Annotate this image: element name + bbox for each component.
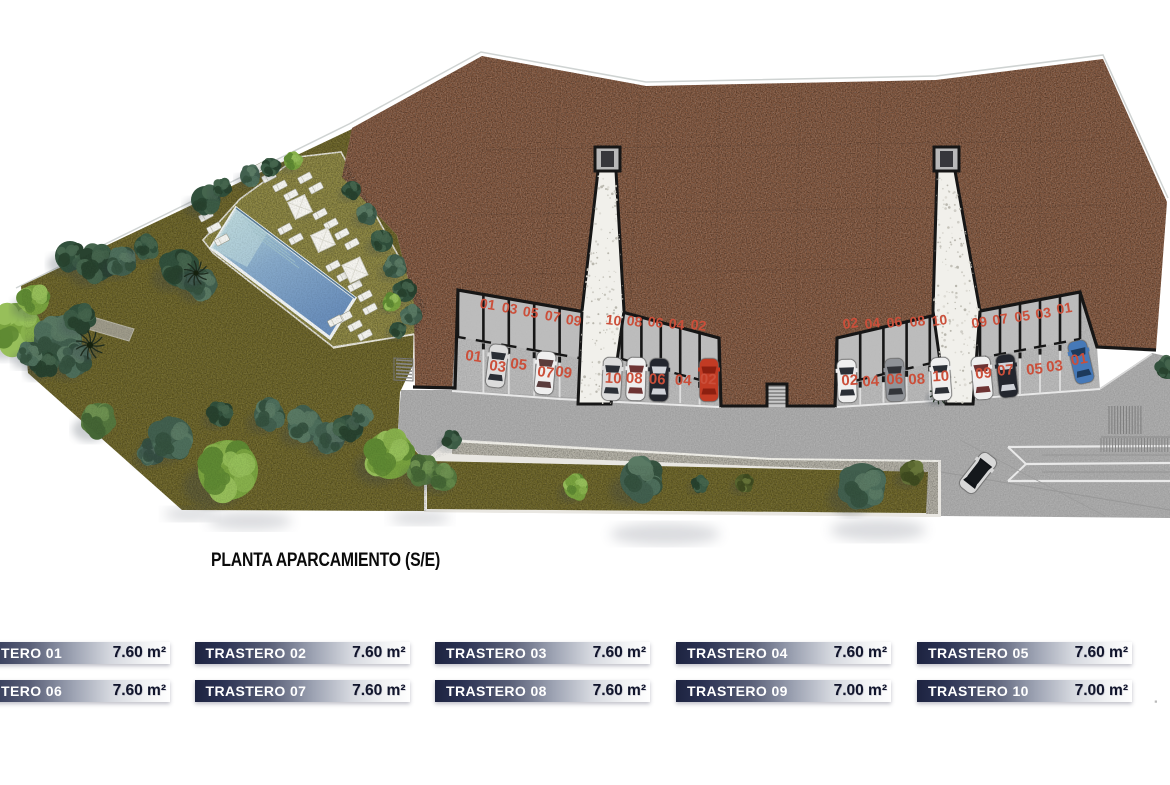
svg-text:03: 03 <box>488 357 507 376</box>
svg-text:09: 09 <box>974 364 992 383</box>
svg-text:10: 10 <box>604 370 622 388</box>
svg-text:01: 01 <box>1070 350 1089 370</box>
svg-text:04: 04 <box>862 373 880 391</box>
svg-text:03: 03 <box>1045 357 1063 376</box>
svg-text:10: 10 <box>932 368 950 386</box>
svg-text:10: 10 <box>931 311 949 329</box>
svg-text:04: 04 <box>864 314 882 332</box>
svg-text:01: 01 <box>479 295 497 313</box>
svg-text:03: 03 <box>1034 304 1052 322</box>
svg-text:10: 10 <box>605 311 623 329</box>
svg-text:07: 07 <box>544 307 562 325</box>
svg-text:01: 01 <box>1055 299 1073 317</box>
svg-text:08: 08 <box>625 370 643 388</box>
svg-text:02: 02 <box>690 316 708 334</box>
svg-text:06: 06 <box>886 313 904 331</box>
svg-text:02: 02 <box>842 314 860 332</box>
svg-text:06: 06 <box>647 313 665 331</box>
svg-text:07: 07 <box>996 361 1014 380</box>
svg-text:08: 08 <box>908 371 926 389</box>
svg-text:04: 04 <box>674 372 692 390</box>
svg-text:07: 07 <box>991 310 1009 328</box>
svg-text:08: 08 <box>909 312 927 330</box>
svg-text:07: 07 <box>536 363 555 382</box>
svg-text:09: 09 <box>970 313 988 331</box>
svg-text:01: 01 <box>464 347 483 366</box>
svg-text:02: 02 <box>841 372 859 390</box>
svg-text:09: 09 <box>565 311 583 329</box>
svg-text:06: 06 <box>886 371 904 389</box>
svg-text:05: 05 <box>1025 360 1043 379</box>
svg-text:04: 04 <box>668 315 686 333</box>
svg-text:06: 06 <box>648 371 666 389</box>
svg-text:08: 08 <box>626 312 644 330</box>
svg-text:05: 05 <box>522 303 540 321</box>
svg-text:09: 09 <box>554 363 573 382</box>
svg-text:03: 03 <box>501 299 519 317</box>
svg-text:05: 05 <box>1013 307 1031 325</box>
svg-text:05: 05 <box>509 355 528 374</box>
svg-text:02: 02 <box>699 371 717 389</box>
